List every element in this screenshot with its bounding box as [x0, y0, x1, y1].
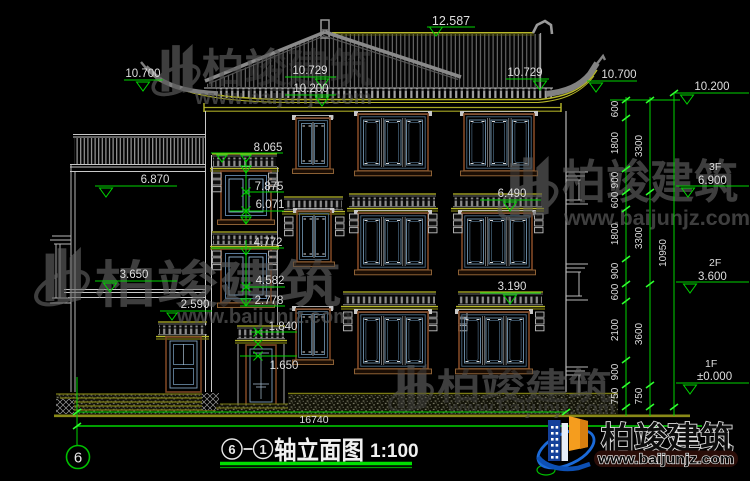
svg-text:柏竣建筑: 柏竣建筑: [95, 257, 341, 313]
svg-text:900: 900: [610, 262, 621, 279]
svg-text:3.650: 3.650: [120, 269, 149, 281]
svg-text:6.900: 6.900: [698, 175, 727, 187]
svg-text:600: 600: [610, 283, 621, 300]
svg-text:600: 600: [610, 100, 621, 117]
svg-text:750: 750: [610, 387, 621, 404]
svg-text:www.baijunjz.com: www.baijunjz.com: [447, 398, 615, 418]
svg-text:2F: 2F: [709, 257, 721, 269]
svg-text:6.071: 6.071: [256, 199, 285, 211]
svg-text:柏竣建筑: 柏竣建筑: [202, 47, 372, 91]
svg-text:1F: 1F: [705, 358, 717, 370]
svg-text:3300: 3300: [634, 134, 645, 157]
svg-text:3.600: 3.600: [698, 271, 727, 283]
svg-text:6: 6: [228, 442, 235, 457]
svg-text:2100: 2100: [610, 318, 621, 341]
svg-text:±0.000: ±0.000: [697, 371, 732, 383]
svg-text:1: 1: [259, 442, 266, 457]
svg-text:www.baijunjz.com: www.baijunjz.com: [563, 207, 750, 230]
svg-text:10.729: 10.729: [507, 67, 542, 79]
svg-text:2.778: 2.778: [255, 295, 284, 307]
svg-text:2.590: 2.590: [181, 299, 210, 311]
svg-text:10.729: 10.729: [292, 65, 327, 77]
svg-text:6.870: 6.870: [141, 174, 170, 186]
svg-text:1800: 1800: [610, 131, 621, 154]
svg-text:1:100: 1:100: [370, 441, 419, 462]
svg-text:1.650: 1.650: [270, 360, 299, 372]
svg-text:1800: 1800: [610, 222, 621, 245]
svg-text:4.772: 4.772: [254, 237, 283, 249]
svg-text:12.587: 12.587: [432, 14, 470, 28]
svg-text:900: 900: [610, 363, 621, 380]
svg-text:600: 600: [610, 191, 621, 208]
svg-text:3.190: 3.190: [498, 281, 527, 293]
svg-text:900: 900: [610, 171, 621, 188]
svg-text:3600: 3600: [634, 322, 645, 345]
svg-text:4.582: 4.582: [256, 275, 285, 287]
svg-text:6.490: 6.490: [498, 188, 527, 200]
svg-text:10.200: 10.200: [694, 81, 729, 93]
svg-text:10.200: 10.200: [293, 83, 328, 95]
svg-text:16740: 16740: [299, 414, 328, 426]
svg-text:www.baijunjz.com: www.baijunjz.com: [194, 87, 372, 109]
svg-text:10.700: 10.700: [125, 68, 160, 80]
svg-text:3F: 3F: [709, 161, 721, 173]
svg-text:10.700: 10.700: [601, 69, 636, 81]
svg-text:7.875: 7.875: [255, 181, 284, 193]
svg-text:10950: 10950: [658, 239, 669, 267]
svg-text:www.baijunjz.com: www.baijunjz.com: [597, 452, 734, 467]
svg-text:3300: 3300: [634, 226, 645, 249]
svg-text:6: 6: [74, 450, 82, 467]
svg-text:8.065: 8.065: [254, 142, 283, 154]
svg-text:1.840: 1.840: [269, 321, 298, 333]
svg-text:轴立面图: 轴立面图: [274, 436, 364, 465]
svg-text:750: 750: [634, 387, 645, 404]
